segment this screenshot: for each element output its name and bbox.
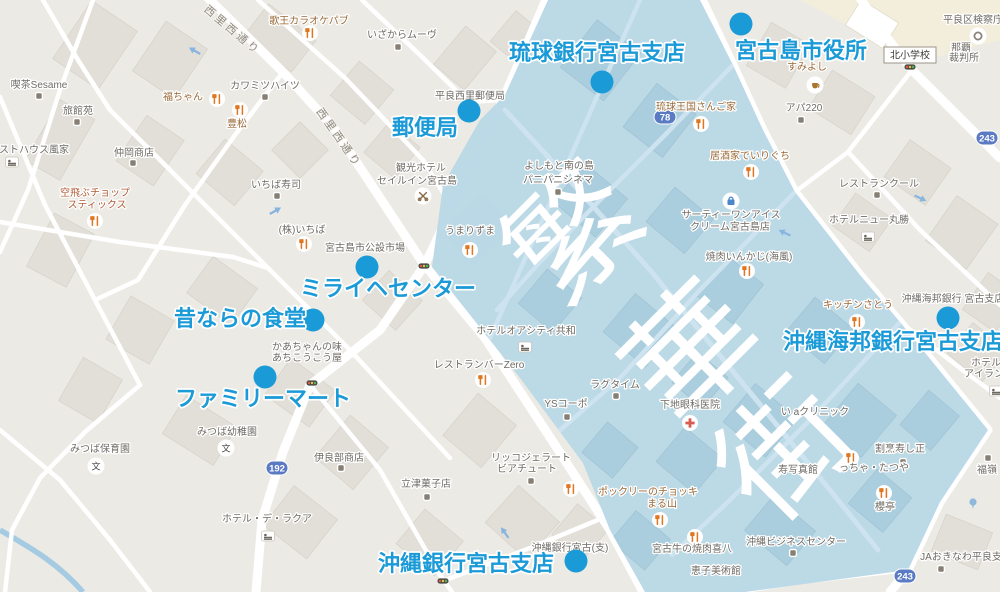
svg-text:北小学校: 北小学校 [890, 49, 930, 62]
restaurant-icon[interactable] [296, 236, 312, 252]
poi-marker-icon[interactable] [613, 393, 620, 400]
map-label[interactable]: うまりずま [445, 225, 495, 237]
dot-city-hall[interactable] [730, 13, 753, 36]
lodging-icon[interactable] [262, 531, 275, 541]
map-label[interactable]: い aクリニック [781, 406, 849, 418]
route-shield-192: 192 [266, 461, 288, 475]
map-label[interactable]: 伊良部商店 [314, 451, 364, 464]
map-label[interactable]: 焼肉いんかじ(海風) [706, 250, 793, 263]
map-label[interactable]: 寿写真館 [778, 463, 818, 476]
poi-marker-icon[interactable] [274, 193, 281, 200]
map-label[interactable]: ホテルオアシティ共和 [476, 325, 575, 337]
map-label[interactable]: 裁判所 [949, 51, 979, 64]
school-icon[interactable] [88, 458, 105, 475]
hospital-icon[interactable] [682, 415, 698, 431]
poi-marker-icon[interactable] [395, 44, 402, 51]
restaurant-icon[interactable] [652, 512, 668, 528]
map-label[interactable]: よしもと南の島 [524, 159, 594, 172]
map-label[interactable]: アパ220 [786, 102, 823, 114]
annotation-mirai-center: ミライヘセンター [300, 276, 476, 301]
map-canvas[interactable]: 文 [0, 0, 1000, 592]
map-label[interactable]: いざからムーヴ [367, 28, 437, 41]
restaurant-icon[interactable] [475, 372, 491, 388]
map-label[interactable]: セイルイン宮古島 [377, 174, 457, 187]
dot-post-office[interactable] [458, 100, 481, 123]
government-office-icon[interactable] [970, 28, 987, 45]
map-label[interactable]: 福嶺 [977, 463, 997, 476]
traffic-light-icon [438, 578, 449, 583]
poi-marker-icon[interactable] [798, 117, 805, 124]
svg-text:78: 78 [660, 112, 671, 123]
poi-marker-icon[interactable] [555, 189, 562, 196]
map-label[interactable]: 恵子美術館 [691, 564, 741, 577]
map-label[interactable]: っちゃ・たつや [839, 462, 909, 474]
traffic-light-icon [419, 263, 430, 268]
poi-marker-icon[interactable] [36, 93, 43, 100]
map-label[interactable]: レストランクール [839, 178, 919, 190]
map-label[interactable]: アイラン [964, 368, 1000, 380]
map-label[interactable]: 観光ホテル [396, 161, 446, 174]
map-label[interactable]: キッチンさとう [823, 299, 893, 311]
map-label[interactable]: 櫻亭 [875, 500, 895, 513]
svg-text:243: 243 [979, 133, 995, 144]
map-label[interactable]: カワミツハイツ [230, 80, 300, 92]
map-label[interactable]: 宮古牛の焼肉喜八 [652, 542, 732, 555]
lodging-icon[interactable] [990, 386, 1000, 396]
dot-kaiho-bank[interactable] [937, 307, 960, 330]
map-label[interactable]: みつば保育園 [70, 442, 130, 455]
annotation-familymart: ファミリーマート [175, 386, 351, 411]
lodging-icon[interactable] [6, 157, 19, 167]
poi-marker-icon[interactable] [790, 550, 797, 557]
annotation-okinawa-bank: 沖縄銀行宮古支店 [378, 551, 554, 576]
poi-marker-icon[interactable] [528, 478, 535, 485]
map-label[interactable]: 琉球王国さんご家 [656, 100, 736, 113]
poi-marker-icon[interactable] [262, 94, 269, 101]
poi-marker-icon[interactable] [564, 414, 571, 421]
map-label[interactable]: 下地眼科医院 [660, 398, 720, 411]
school-icon[interactable] [218, 440, 235, 457]
map-label[interactable]: かあちゃんの味 [272, 341, 342, 353]
annotation-kaiho-bank: 沖縄海邦銀行宮古支店 [783, 329, 1000, 354]
map-label[interactable]: リッコジェラート [491, 452, 571, 464]
cafe-icon[interactable] [807, 77, 824, 94]
restaurant-icon[interactable] [739, 263, 755, 279]
restaurant-icon[interactable] [209, 91, 225, 107]
route-shield-243-bottom: 243 [894, 569, 916, 583]
map-label[interactable]: クリーム宮古島店 [690, 220, 770, 233]
map-label[interactable]: ストハウス風家 [0, 143, 69, 156]
map-label[interactable]: ホテル [971, 357, 1000, 369]
lodging-icon[interactable] [519, 342, 532, 352]
annotation-ryukyu-bank: 琉球銀行宮古支店 [509, 40, 685, 65]
annotation-post-office: 郵便局 [392, 115, 458, 140]
restaurant-icon[interactable] [563, 481, 579, 497]
map-label[interactable]: 福ちゃん [163, 90, 203, 103]
svg-text:243: 243 [897, 571, 913, 582]
restaurant-icon[interactable] [849, 314, 865, 330]
svg-text:192: 192 [269, 463, 285, 474]
map-label[interactable]: 旅館苑 [63, 104, 93, 117]
map-label[interactable]: サーティーワンアイス [681, 209, 780, 221]
map-label[interactable]: ビアチュート [497, 463, 557, 475]
store-icon[interactable] [723, 193, 740, 210]
poi-marker-icon[interactable] [874, 192, 881, 199]
restaurant-icon[interactable] [687, 529, 703, 545]
restaurant-icon[interactable] [876, 485, 892, 501]
map-label[interactable]: ホテルニュー丸勝 [829, 213, 909, 226]
poi-marker-icon[interactable] [985, 455, 992, 462]
lodging-icon[interactable] [862, 232, 875, 242]
school-name-box: 北小学校 [884, 47, 936, 63]
traffic-light-icon [307, 380, 318, 385]
map-label[interactable]: みつば幼稚園 [197, 425, 257, 438]
restaurant-icon[interactable] [232, 102, 248, 118]
dot-ryukyu-bank[interactable] [591, 71, 614, 94]
annotation-shokudo: 昔ならの食堂 [174, 306, 306, 331]
map-label[interactable]: 仲岡商店 [114, 146, 154, 159]
map-label[interactable]: ポックリーのチョッキ [598, 486, 698, 498]
poi-marker-icon[interactable] [424, 494, 431, 501]
map-label[interactable]: 沖縄海邦銀行 宮古支店 [902, 292, 1000, 305]
salon-icon[interactable] [415, 188, 432, 205]
map-label[interactable]: YSコーポ [544, 398, 587, 410]
restaurant-icon[interactable] [462, 242, 478, 258]
map-label[interactable]: JAおきなわ平良支店 [920, 550, 1000, 563]
map-label[interactable]: ホテル・デ・ラクア [222, 512, 312, 525]
route-shield-243-top: 243 [976, 131, 998, 145]
map-label[interactable]: 割烹寿し正 [875, 442, 925, 455]
map-label[interactable]: 歌王カラオケパブ [269, 14, 349, 27]
map-label[interactable]: 宮古島市公設市場 [325, 241, 405, 254]
map-label[interactable]: 平良区検察庁 [943, 13, 1000, 26]
map-label[interactable]: まる山 [647, 498, 677, 510]
restaurant-icon[interactable] [87, 213, 103, 229]
dot-okinawa-bank[interactable] [565, 550, 588, 573]
annotation-city-hall: 宮古島市役所 [735, 38, 867, 63]
poi-marker-icon[interactable] [338, 465, 345, 472]
map-label[interactable]: スティックス [67, 199, 126, 211]
map-label[interactable]: いちば寿司 [251, 178, 301, 191]
map-label[interactable]: 立津菓子店 [401, 477, 451, 490]
map-label[interactable]: (株)いちば [279, 223, 326, 236]
restaurant-icon[interactable] [693, 116, 709, 132]
map-label[interactable]: 居酒家でいりぐち [710, 149, 790, 162]
map-label[interactable]: パニパニシネマ [523, 174, 593, 186]
poi-marker-icon[interactable] [74, 119, 81, 126]
map-label[interactable]: 喫茶Sesame [11, 78, 68, 91]
map-label[interactable]: 空飛ぶチョップ [60, 186, 130, 199]
poi-marker-icon[interactable] [938, 566, 945, 573]
map-label[interactable]: 沖縄ビジネスセンター [746, 535, 846, 548]
traffic-light-icon [905, 64, 916, 69]
poi-marker-icon[interactable] [130, 160, 137, 167]
restaurant-icon[interactable] [302, 25, 318, 41]
map-label[interactable]: あちこうこう屋 [272, 352, 342, 364]
map-label[interactable]: レストランバーZero [434, 359, 525, 371]
map-label[interactable]: ラグタイム [590, 378, 640, 391]
restaurant-icon[interactable] [743, 164, 759, 180]
map-label[interactable]: 豊松 [227, 117, 247, 130]
